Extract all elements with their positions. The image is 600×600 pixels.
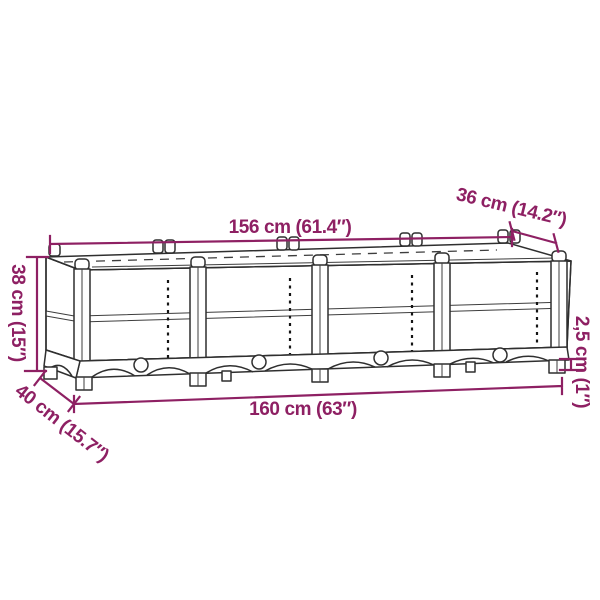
post (434, 253, 450, 352)
skirt-tab (222, 371, 231, 381)
skirt-knob (493, 348, 507, 362)
foot (44, 367, 57, 379)
post (190, 257, 206, 359)
product-dimension-diagram: 156 cm (61.4″) 36 cm (14.2″) 38 cm (15″)… (0, 0, 600, 600)
skirt-knob (374, 351, 388, 365)
dim-label-top-length: 156 cm (61.4″) (229, 217, 352, 238)
foot (76, 377, 92, 390)
dim-label-side-height: 38 cm (15″) (7, 264, 28, 362)
post (551, 251, 567, 348)
planter-dimension-svg: 156 cm (61.4″) 36 cm (14.2″) 38 cm (15″)… (0, 0, 600, 600)
skirt-knob (134, 358, 148, 372)
skirt-tab (466, 362, 475, 372)
skirt-knob (252, 355, 266, 369)
dim-label-foot-height: 2,5 cm (1″) (571, 316, 592, 408)
post (74, 259, 90, 362)
dim-label-bottom-length: 160 cm (63″) (249, 399, 357, 420)
foot (434, 364, 450, 377)
post (312, 255, 328, 355)
foot (312, 369, 328, 382)
foot (190, 373, 206, 386)
